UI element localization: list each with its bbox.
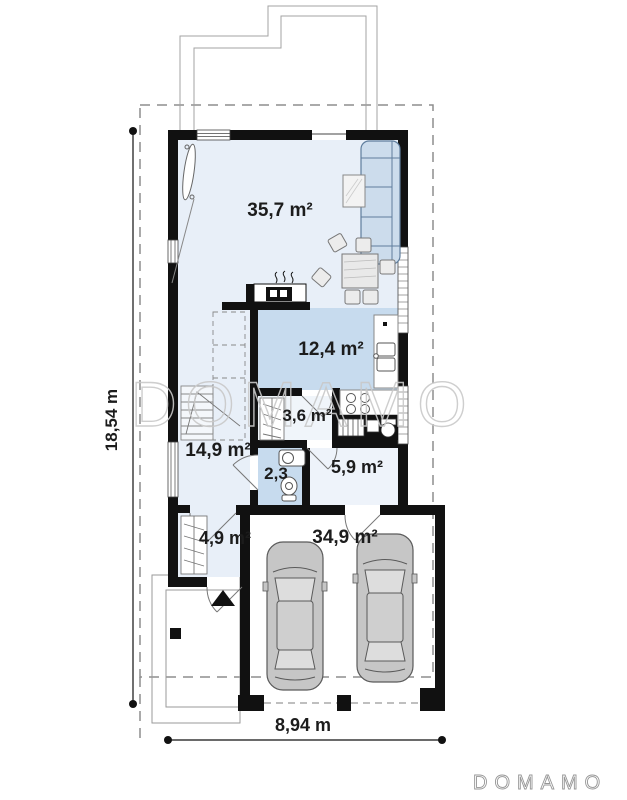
- coffee-table-symbol: [343, 175, 365, 207]
- stove-icon: [266, 287, 292, 301]
- logo-text: DOMAMO: [473, 772, 607, 794]
- width-dimension-label: 8,94 m: [275, 715, 331, 735]
- chair-symbol: [345, 290, 360, 304]
- depth-dimension-label: 18,54 m: [102, 389, 121, 451]
- chair-symbol: [363, 290, 378, 304]
- floor-plan-page: DOMAMO 35,7 m² 12,4 m² 3,6 m² 14,9 m² 2,…: [0, 0, 627, 800]
- floor-plan-drawing: DOMAMO 35,7 m² 12,4 m² 3,6 m² 14,9 m² 2,…: [0, 0, 627, 800]
- entrance-door: [207, 587, 242, 612]
- chair-symbol: [380, 260, 395, 274]
- wc-area-label: 2,3: [264, 464, 288, 483]
- window-left-hall: [168, 442, 178, 497]
- porch-column: [170, 628, 181, 639]
- watermark-text: DOMAMO: [131, 370, 475, 440]
- window-top: [197, 130, 230, 140]
- pantry-area-label: 3,6 m²: [282, 406, 331, 425]
- utility-area-label: 5,9 m²: [331, 457, 383, 477]
- car-symbol: [353, 534, 417, 682]
- entry-area-label: 4,9 m²: [199, 528, 251, 548]
- roof-outline: [180, 6, 377, 130]
- hall-area-label: 14,9 m²: [185, 440, 250, 461]
- kitchen-area-label: 12,4 m²: [298, 339, 363, 360]
- chair-symbol: [356, 238, 371, 252]
- living-room-area-label: 35,7 m²: [247, 200, 312, 221]
- window-left-living: [168, 240, 178, 263]
- glazed-terrace-door: [312, 130, 346, 140]
- car-symbol: [263, 542, 327, 690]
- garage-area-label: 34,9 m²: [312, 527, 377, 548]
